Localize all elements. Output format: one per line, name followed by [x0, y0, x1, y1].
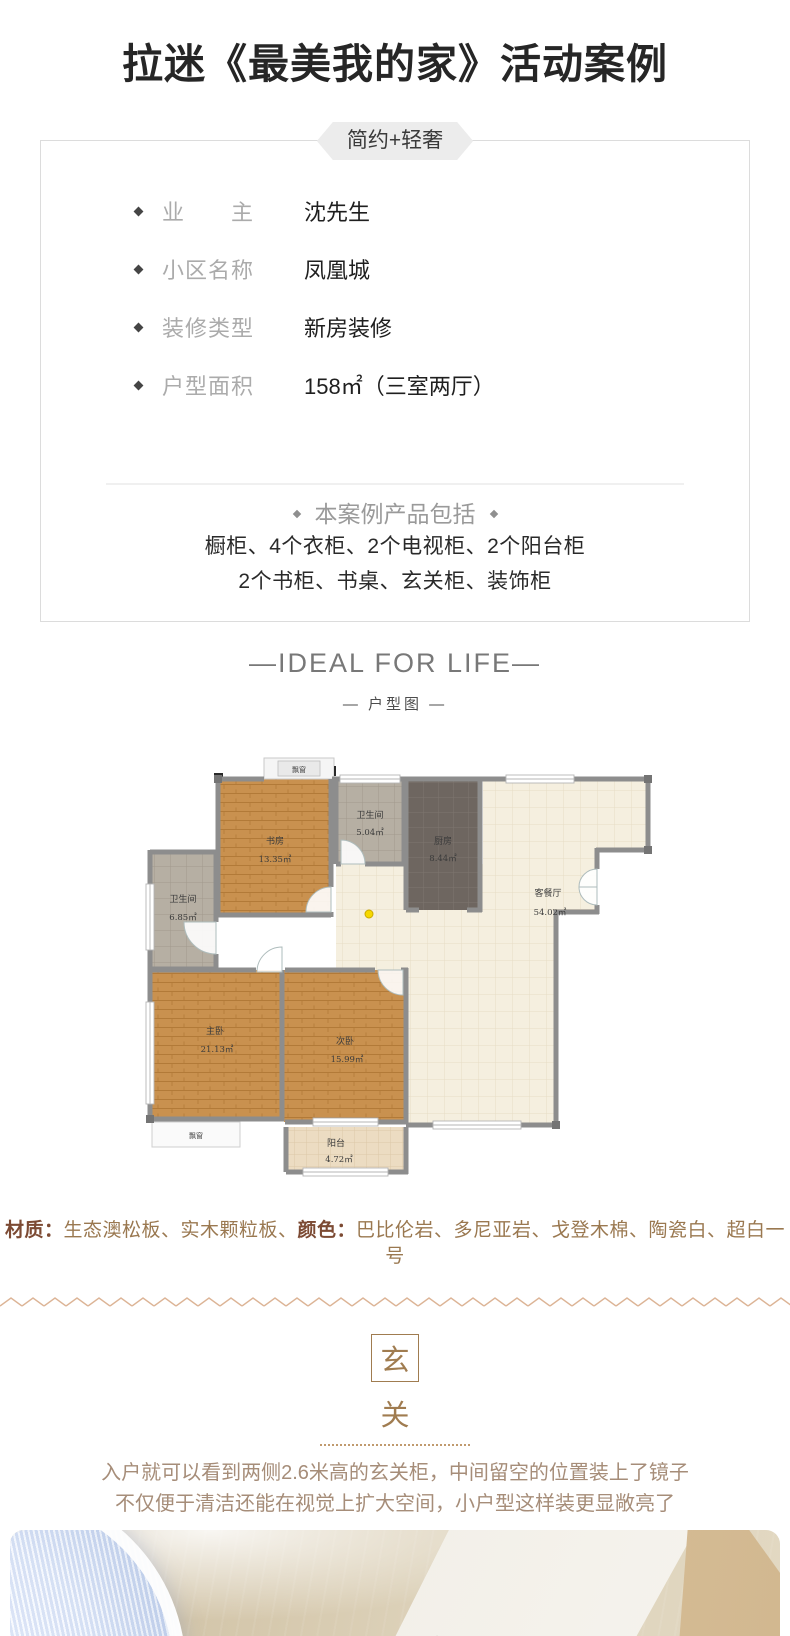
materials-line: 材质：生态澳松板、实木颗粒板、颜色：巴比伦岩、多尼亚岩、戈登木棉、陶瓷白、超白一…	[0, 1218, 790, 1270]
info-value: 158㎡（三室两厅）	[304, 369, 495, 401]
room-area: 13.35㎡	[258, 855, 291, 865]
info-row-owner: 业 主 沈先生	[135, 197, 749, 225]
info-row-community: 小区名称 凤凰城	[135, 255, 749, 283]
room-name: 卫生间	[169, 893, 196, 905]
room-area: 21.13㎡	[200, 1045, 233, 1055]
info-value: 凤凰城	[304, 253, 370, 285]
info-label: 装修类型	[162, 311, 292, 343]
entry-photo	[10, 1530, 780, 1636]
material-value: 生态澳松板、实木颗粒板、	[63, 1220, 297, 1241]
page-title: 拉迷《最美我的家》活动案例	[0, 0, 790, 94]
entry-paragraph: 入户就可以看到两侧2.6米高的玄关柜，中间留空的位置装上了镜子 不仅便于清洁还能…	[0, 1458, 790, 1520]
room-area: 15.99㎡	[330, 1055, 363, 1065]
room-area: 4.72㎡	[325, 1155, 353, 1165]
style-badge: 简约+轻奢	[317, 122, 473, 160]
room-name: 次卧	[335, 1035, 353, 1047]
diamond-bullet-icon	[134, 264, 144, 274]
products-line-1: 橱柜、4个衣柜、2个电视柜、2个阳台柜	[41, 529, 749, 564]
room-area: 8.44㎡	[429, 854, 457, 864]
floorplan-drawing: 书房 13.35㎡ 卫生间 5.04㎡ 厨房 8.44㎡ 客餐厅 54.02㎡ …	[138, 722, 653, 1182]
room-area: 6.85㎡	[169, 913, 197, 923]
info-value: 新房装修	[304, 311, 392, 343]
diamond-bullet-icon	[134, 206, 144, 216]
products-line-2: 2个书柜、书桌、玄关柜、装饰柜	[41, 564, 749, 599]
slogan-english: —IDEAL FOR LIFE—	[0, 648, 790, 679]
bay-window-label: 飘窗	[189, 1131, 203, 1140]
room-name: 书房	[265, 835, 283, 847]
dotted-divider	[320, 1444, 470, 1446]
info-value: 沈先生	[304, 195, 370, 227]
entry-paragraph-line-2: 不仅便于清洁还能在视觉上扩大空间，小户型这样装更显敞亮了	[0, 1489, 790, 1520]
products-heading: 本案例产品包括	[41, 499, 749, 529]
entry-section-under-char: 关	[0, 1392, 790, 1434]
zigzag-divider	[0, 1294, 790, 1310]
diamond-icon	[292, 510, 300, 518]
material-label: 材质：	[5, 1220, 64, 1241]
products-heading-text: 本案例产品包括	[315, 499, 476, 529]
info-row-renovation-type: 装修类型 新房装修	[135, 313, 749, 341]
info-label: 小区名称	[162, 253, 292, 285]
color-label: 颜色：	[298, 1220, 357, 1241]
room-name: 卫生间	[356, 809, 383, 821]
diamond-bullet-icon	[134, 380, 144, 390]
divider-line	[106, 483, 684, 485]
color-value: 巴比伦岩、多尼亚岩、戈登木棉、陶瓷白、超白一号	[356, 1220, 785, 1267]
floorplan-section-label: — 户型图 —	[0, 693, 790, 714]
info-box: 简约+轻奢 业 主 沈先生 小区名称 凤凰城 装修类型 新房装修 户型面积 15…	[40, 140, 750, 622]
room-area: 5.04㎡	[356, 828, 384, 838]
room-name: 客餐厅	[534, 887, 561, 899]
entry-paragraph-line-1: 入户就可以看到两侧2.6米高的玄关柜，中间留空的位置装上了镜子	[0, 1458, 790, 1489]
diamond-icon	[489, 510, 497, 518]
entry-section-boxed-char: 玄	[371, 1334, 419, 1382]
bay-window-label: 飘窗	[292, 765, 306, 774]
room-name: 阳台	[326, 1137, 344, 1149]
floorplan: 书房 13.35㎡ 卫生间 5.04㎡ 厨房 8.44㎡ 客餐厅 54.02㎡ …	[0, 722, 790, 1182]
info-label: 业 主	[162, 195, 292, 227]
diamond-bullet-icon	[134, 322, 144, 332]
room-name: 主卧	[205, 1025, 223, 1037]
room-area: 54.02㎡	[533, 908, 566, 918]
case-study-page: 拉迷《最美我的家》活动案例 简约+轻奢 业 主 沈先生 小区名称 凤凰城 装修类…	[0, 0, 790, 1636]
info-label: 户型面积	[162, 369, 292, 401]
room-name: 厨房	[433, 835, 451, 847]
info-row-area: 户型面积 158㎡（三室两厅）	[135, 371, 749, 399]
ceiling-light-dot	[365, 910, 373, 918]
